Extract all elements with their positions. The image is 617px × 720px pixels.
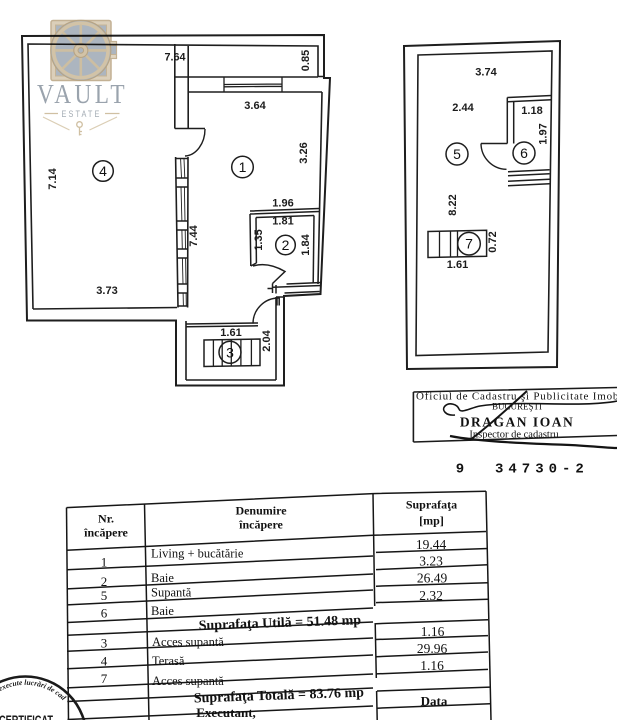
svg-text:Supantă: Supantă	[151, 586, 192, 600]
svg-text:Acces supantă: Acces supantă	[152, 635, 224, 649]
svg-text:[mp]: [mp]	[419, 514, 444, 528]
svg-text:0.72: 0.72	[487, 231, 499, 252]
svg-text:Baie: Baie	[151, 571, 174, 585]
svg-text:Baie: Baie	[151, 604, 174, 618]
svg-text:Living + bucătărie: Living + bucătărie	[151, 547, 244, 561]
svg-text:7.14: 7.14	[47, 167, 59, 189]
svg-text:2.32: 2.32	[419, 588, 443, 603]
svg-text:2.44: 2.44	[452, 102, 474, 114]
svg-text:4: 4	[99, 163, 107, 179]
svg-text:4: 4	[101, 653, 108, 668]
svg-text:Suprafaţa: Suprafaţa	[406, 498, 457, 512]
svg-text:7.64: 7.64	[165, 52, 187, 64]
svg-text:1.16: 1.16	[420, 658, 444, 673]
svg-text:1.35: 1.35	[253, 229, 265, 250]
svg-text:1: 1	[239, 159, 247, 175]
svg-text:ESTATE: ESTATE	[62, 109, 102, 119]
svg-text:3: 3	[101, 636, 108, 651]
svg-text:3: 3	[226, 344, 234, 360]
svg-text:Suprafaţa Totală = 83.76 mp: Suprafaţa Totală = 83.76 mp	[194, 686, 365, 707]
svg-text:încăpere: încăpere	[238, 518, 283, 532]
svg-text:6: 6	[101, 605, 108, 620]
svg-text:ă execute lucrări de cad: ă execute lucrări de cad	[0, 678, 68, 702]
svg-text:Suprafaţa Utilă = 51.48 mp: Suprafaţa Utilă = 51.48 mp	[198, 613, 361, 634]
svg-text:1.84: 1.84	[300, 233, 312, 255]
svg-text:Executant,: Executant,	[196, 705, 256, 720]
svg-text:DRAGAN IOAN: DRAGAN IOAN	[460, 415, 574, 430]
svg-text:1.97: 1.97	[538, 123, 550, 144]
svg-text:7.44: 7.44	[188, 224, 200, 246]
svg-text:7: 7	[101, 671, 108, 686]
svg-text:1: 1	[101, 554, 108, 569]
svg-text:1.18: 1.18	[521, 105, 542, 117]
svg-text:1.96: 1.96	[272, 198, 293, 210]
svg-text:3.64: 3.64	[244, 100, 266, 112]
svg-text:5: 5	[101, 588, 108, 603]
svg-text:29.96: 29.96	[417, 641, 448, 656]
svg-text:CERTIFICAT: CERTIFICAT	[0, 714, 53, 720]
svg-text:3.74: 3.74	[475, 67, 497, 79]
svg-text:6: 6	[520, 145, 528, 161]
svg-text:34730-2: 34730-2	[495, 462, 589, 478]
svg-text:26.49: 26.49	[417, 571, 448, 586]
svg-text:Inspector de cadastru: Inspector de cadastru	[469, 430, 559, 441]
svg-text:19.44: 19.44	[416, 537, 447, 552]
svg-text:Nr.: Nr.	[98, 512, 114, 526]
svg-text:VAULT: VAULT	[37, 79, 128, 109]
svg-text:1.61: 1.61	[220, 327, 241, 339]
svg-text:9: 9	[456, 462, 464, 478]
svg-text:8.22: 8.22	[447, 194, 459, 215]
svg-text:7: 7	[465, 236, 473, 252]
svg-text:3.73: 3.73	[96, 285, 117, 297]
svg-text:2.04: 2.04	[261, 329, 273, 351]
svg-text:2: 2	[282, 237, 290, 253]
svg-text:încăpere: încăpere	[83, 526, 128, 540]
svg-text:0.85: 0.85	[300, 50, 312, 71]
svg-text:Denumire: Denumire	[235, 504, 287, 518]
svg-text:Terasă: Terasă	[152, 654, 185, 668]
svg-text:Data: Data	[421, 694, 448, 709]
svg-text:1.61: 1.61	[447, 259, 468, 271]
svg-text:5: 5	[453, 146, 461, 162]
svg-text:1.16: 1.16	[421, 624, 445, 639]
svg-text:3.26: 3.26	[298, 142, 310, 163]
svg-text:3.23: 3.23	[419, 554, 443, 569]
svg-text:1.81: 1.81	[272, 216, 293, 228]
svg-text:Acces supantă: Acces supantă	[152, 674, 224, 688]
